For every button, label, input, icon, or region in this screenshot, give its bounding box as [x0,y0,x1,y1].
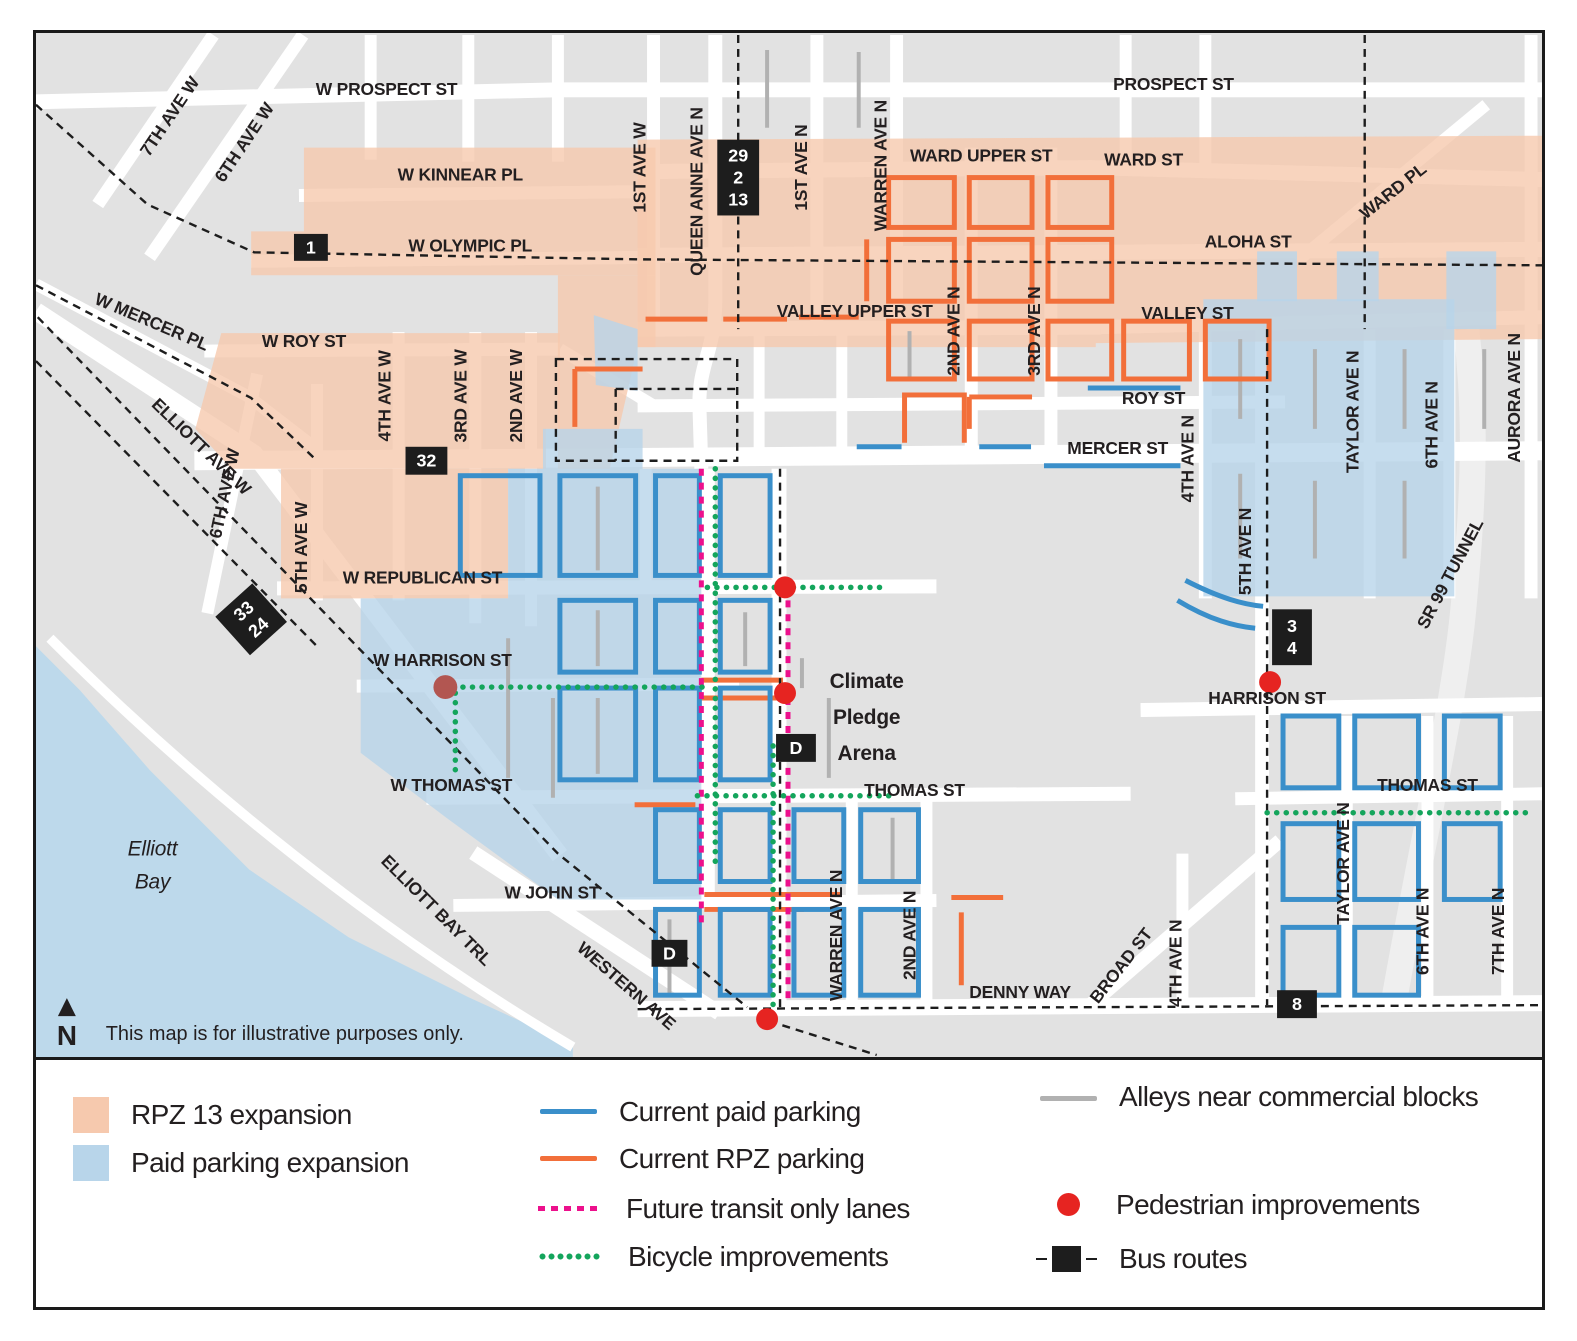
street-label: 2ND AVE W [506,349,526,443]
street-label: 7TH AVE N [1488,888,1508,975]
street-label: ALOHA ST [1205,231,1292,251]
street-label: 6TH AVE N [1421,381,1441,468]
bus-route-number: 8 [1292,994,1302,1014]
bus-route-number: 3 [1287,616,1297,636]
street-label: WARREN AVE N [826,870,846,1001]
legend-label: Alleys near commercial blocks [1119,1078,1478,1116]
street-label: 4TH AVE N [1165,920,1185,1007]
pedestrian-improvement-dot [756,1008,778,1030]
street-label: W OLYMPIC PL [408,235,532,255]
street-label: DENNY WAY [969,982,1071,1002]
bus-route-badge: 8 [1277,990,1317,1018]
paid-expansion-swatch-icon [73,1145,109,1181]
legend-item-transit-lanes: Future transit only lanes [538,1190,910,1228]
bus-route-icon [1036,1246,1097,1272]
legend-label: Bus routes [1119,1240,1247,1278]
legend-item-paid-expansion: Paid parking expansion [73,1144,409,1182]
bus-route-badge: 1 [294,234,328,261]
street-label: 2ND AVE N [900,891,920,980]
street-label: W ROY ST [262,331,347,351]
disclaimer-text: This map is for illustrative purposes on… [106,1023,464,1045]
map-canvas: 12921332332434DD8 W PROSPECT STPROSPECT … [36,33,1542,1057]
street-label: W REPUBLICAN ST [343,567,503,587]
rpz13-swatch-icon [73,1097,109,1133]
legend-item-pedestrian: Pedestrian improvements [1057,1186,1420,1224]
paid-parking-line-icon [540,1109,597,1114]
legend-item-bike: Bicycle improvements [538,1238,888,1276]
bus-route-badge: D [776,734,816,762]
street-label: 5TH AVE W [291,501,311,593]
street-label: 6TH AVE N [1412,888,1432,975]
street-label: W KINNEAR PL [398,165,524,185]
pedestrian-improvement-dot [774,682,796,704]
bus-route-number: 1 [306,237,316,257]
street-label: WARD ST [1104,150,1183,170]
bus-route-badge: 29213 [717,140,759,216]
legend-item-bus-routes: Bus routes [1036,1240,1247,1278]
north-arrow-label: N [57,1020,77,1051]
bus-route-number: D [663,943,676,963]
street-label: 5TH AVE N [1235,508,1255,595]
bus-route-badge: 34 [1272,609,1312,665]
city-map: 12921332332434DD8 W PROSPECT STPROSPECT … [36,33,1542,1057]
pedestrian-improvement-dot [774,576,796,598]
street-label: 1ST AVE N [791,124,811,210]
street-label: 4TH AVE N [1177,415,1197,502]
street-label: THOMAS ST [864,780,965,800]
bus-route-badge: 32 [406,447,448,475]
street-label: 3RD AVE N [1024,287,1044,376]
legend-item-current-paid: Current paid parking [540,1093,861,1131]
legend-label: Pedestrian improvements [1116,1186,1420,1224]
street-label: 2ND AVE N [943,287,963,376]
legend-label: Current paid parking [619,1093,861,1131]
legend-item-rpz13: RPZ 13 expansion [73,1096,352,1134]
street-label: PROSPECT ST [1113,74,1234,94]
legend-item-current-rpz: Current RPZ parking [540,1140,864,1178]
bus-route-number: 13 [728,189,748,209]
alley-line-icon [1040,1096,1097,1101]
street-label: MERCER ST [1067,438,1168,458]
legend-item-alleys: Alleys near commercial blocks [1040,1078,1478,1116]
street-label: THOMAS ST [1377,775,1478,795]
street-label: ROY ST [1122,388,1186,408]
arena-label: ClimatePledgeArena [830,670,904,765]
street-label: WARD UPPER ST [910,146,1053,166]
street-label: TAYLOR AVE N [1333,802,1353,925]
legend-label: Current RPZ parking [619,1140,864,1178]
legend-label: Bicycle improvements [628,1238,888,1276]
map-figure: 12921332332434DD8 W PROSPECT STPROSPECT … [33,30,1545,1310]
bus-route-badge: D [652,940,688,967]
street-label: AURORA AVE N [1504,333,1524,463]
street-label: QUEEN ANNE AVE N [686,107,706,276]
bicycle-dotted-icon [538,1253,600,1260]
street-label: VALLEY ST [1141,303,1234,323]
street-label: W THOMAS ST [391,775,513,795]
bus-route-number: D [789,738,802,758]
legend-label: Paid parking expansion [131,1144,409,1182]
bus-route-number: 32 [416,451,436,471]
bus-route-number: 29 [728,146,748,166]
street-label: VALLEY UPPER ST [777,301,934,321]
street-label: WARREN AVE N [871,100,891,231]
bus-route-number: 2 [733,168,743,188]
street-label: 1ST AVE W [630,122,650,213]
street-label: 3RD AVE W [450,349,470,443]
transit-lane-dashed-icon [538,1206,598,1211]
street-label: 4TH AVE W [375,350,395,442]
legend-label: Future transit only lanes [626,1190,910,1228]
legend-label: RPZ 13 expansion [131,1096,352,1134]
pedestrian-dot-icon [1057,1193,1080,1216]
street-label: TAYLOR AVE N [1343,351,1363,474]
bus-route-number: 4 [1287,638,1297,658]
street-label: W PROSPECT ST [316,79,458,99]
pedestrian-improvement-dot [433,675,457,699]
rpz-parking-line-icon [540,1156,597,1161]
street-label: W HARRISON ST [373,650,512,670]
street-label: HARRISON ST [1208,688,1326,708]
street-label: W JOHN ST [504,882,600,902]
legend: RPZ 13 expansion Paid parking expansion … [36,1057,1542,1307]
